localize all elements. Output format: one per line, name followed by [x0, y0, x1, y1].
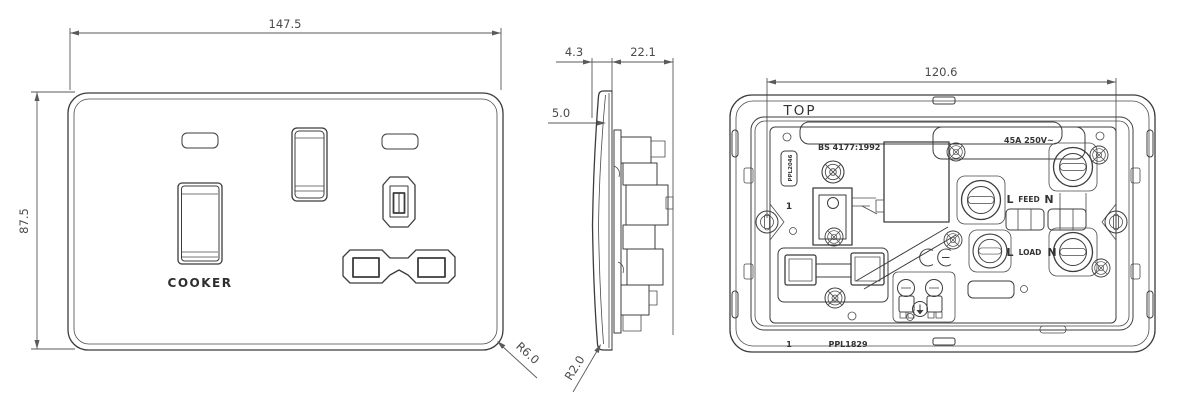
rating-text: 45A 250V~	[1004, 136, 1054, 145]
frame-clip	[744, 264, 753, 279]
side-edge-dim-text: 5.0	[552, 106, 570, 120]
screw-pozi-icon	[944, 231, 962, 249]
frame-clip	[1131, 264, 1140, 279]
front-height-dim-text: 87.5	[17, 208, 31, 234]
terminal-screw-icon	[1054, 233, 1093, 272]
bottom-gang-marker: 1	[786, 340, 792, 349]
plate-slot	[1147, 291, 1153, 318]
arrowhead	[664, 60, 673, 65]
arrowhead	[612, 60, 621, 65]
front-corner-radius-callout: R6.0	[497, 339, 542, 378]
side-plate-profile	[593, 91, 613, 350]
arrowhead	[583, 60, 592, 65]
side-view: 4.3 22.1 5.0	[548, 45, 673, 392]
plate-hole	[907, 314, 914, 321]
load-label: LOAD	[1019, 248, 1042, 257]
screw-pozi-icon	[1090, 146, 1108, 164]
screw-pozi-icon	[825, 288, 845, 308]
side-depth-dim-text: 22.1	[630, 45, 656, 59]
plate-slot	[732, 130, 738, 157]
load-neutral-label: N	[1047, 246, 1056, 259]
arrowhead	[35, 340, 40, 349]
side-back-box	[621, 137, 673, 331]
technical-drawing: 147.5 87.5 COOKER	[0, 0, 1200, 402]
plate-hole	[783, 133, 791, 141]
screw-pozi-icon	[822, 161, 844, 183]
feed-neutral-label: N	[1044, 193, 1053, 206]
earth-symbol-icon	[913, 302, 928, 317]
cooker-neon-window	[182, 133, 218, 148]
arrowhead	[1107, 80, 1116, 85]
cooker-label: COOKER	[168, 276, 233, 290]
frame-clip	[744, 168, 753, 183]
front-width-dimension: 147.5	[70, 17, 501, 90]
frame-clip	[1131, 168, 1140, 183]
side-thickness-dim-text: 4.3	[565, 45, 583, 59]
socket-neon-window	[382, 134, 418, 149]
front-plate-outline	[68, 93, 503, 350]
earth-terminal-cluster	[893, 272, 955, 322]
back-fixing-centres-text: 120.6	[925, 65, 958, 79]
lower-right-cover	[968, 281, 1028, 298]
cooker-rocker-switch	[178, 183, 222, 264]
feed-terminal-labels: L FEED N	[1006, 193, 1053, 206]
plate-slot	[933, 338, 955, 345]
socket-rocker-switch	[292, 128, 327, 201]
terminal-screw-icon	[962, 181, 1001, 220]
front-height-dimension: 87.5	[17, 92, 75, 349]
front-corner-radius-text: R6.0	[513, 339, 542, 367]
drawing-sheet: 147.5 87.5 COOKER	[0, 0, 1200, 402]
back-view: 120.6 TOP	[730, 65, 1155, 352]
plate-slot	[732, 291, 738, 318]
terminal-screw-icon	[973, 234, 1007, 268]
back-plate-outline	[730, 95, 1155, 352]
screw-pozi-icon	[1092, 259, 1110, 277]
side-corner-radius-callout: R2.0	[562, 344, 601, 392]
fixing-screw-left	[756, 211, 778, 233]
arrowhead	[597, 121, 606, 126]
side-corner-radius-text: R2.0	[562, 353, 588, 383]
arrowhead	[492, 31, 501, 36]
gang-marker: 1	[786, 202, 792, 212]
moulding-code-label: PPL2046	[781, 151, 797, 186]
ce-mark-icon	[920, 249, 951, 266]
terminal-screw-icon	[1054, 148, 1093, 187]
front-view: 147.5 87.5 COOKER	[17, 17, 542, 378]
front-width-dim-text: 147.5	[269, 17, 302, 31]
plate-slot	[933, 97, 955, 104]
clip-arrow-icon	[614, 166, 619, 177]
screw-pozi-icon	[947, 143, 965, 161]
arrowhead	[70, 31, 79, 36]
fuse-link-strip	[1006, 209, 1086, 230]
screw-pozi-icon	[825, 228, 843, 246]
load-live-label: L	[1006, 246, 1013, 259]
contact-pads	[778, 248, 888, 302]
plate-hole	[1096, 132, 1104, 140]
plate-hole	[790, 228, 797, 235]
part-number-text: PPL1829	[828, 340, 868, 349]
plate-slot	[1147, 130, 1153, 157]
plate-hole	[848, 312, 856, 320]
moulding-code-text: PPL2046	[788, 154, 794, 181]
load-terminal-labels: L LOAD N	[1006, 246, 1056, 259]
switch-mechanism-bracket	[813, 188, 852, 245]
socket-line-neutral-apertures	[343, 250, 455, 283]
feed-terminal-housings	[957, 143, 1097, 227]
arrowhead	[767, 80, 776, 85]
side-mounting-frame	[614, 130, 623, 333]
arrowhead	[35, 92, 40, 101]
feed-label: FEED	[1018, 195, 1040, 204]
feed-live-label: L	[1006, 193, 1013, 206]
socket-earth-aperture	[383, 177, 415, 227]
side-depth-dimension: 22.1	[630, 45, 673, 335]
